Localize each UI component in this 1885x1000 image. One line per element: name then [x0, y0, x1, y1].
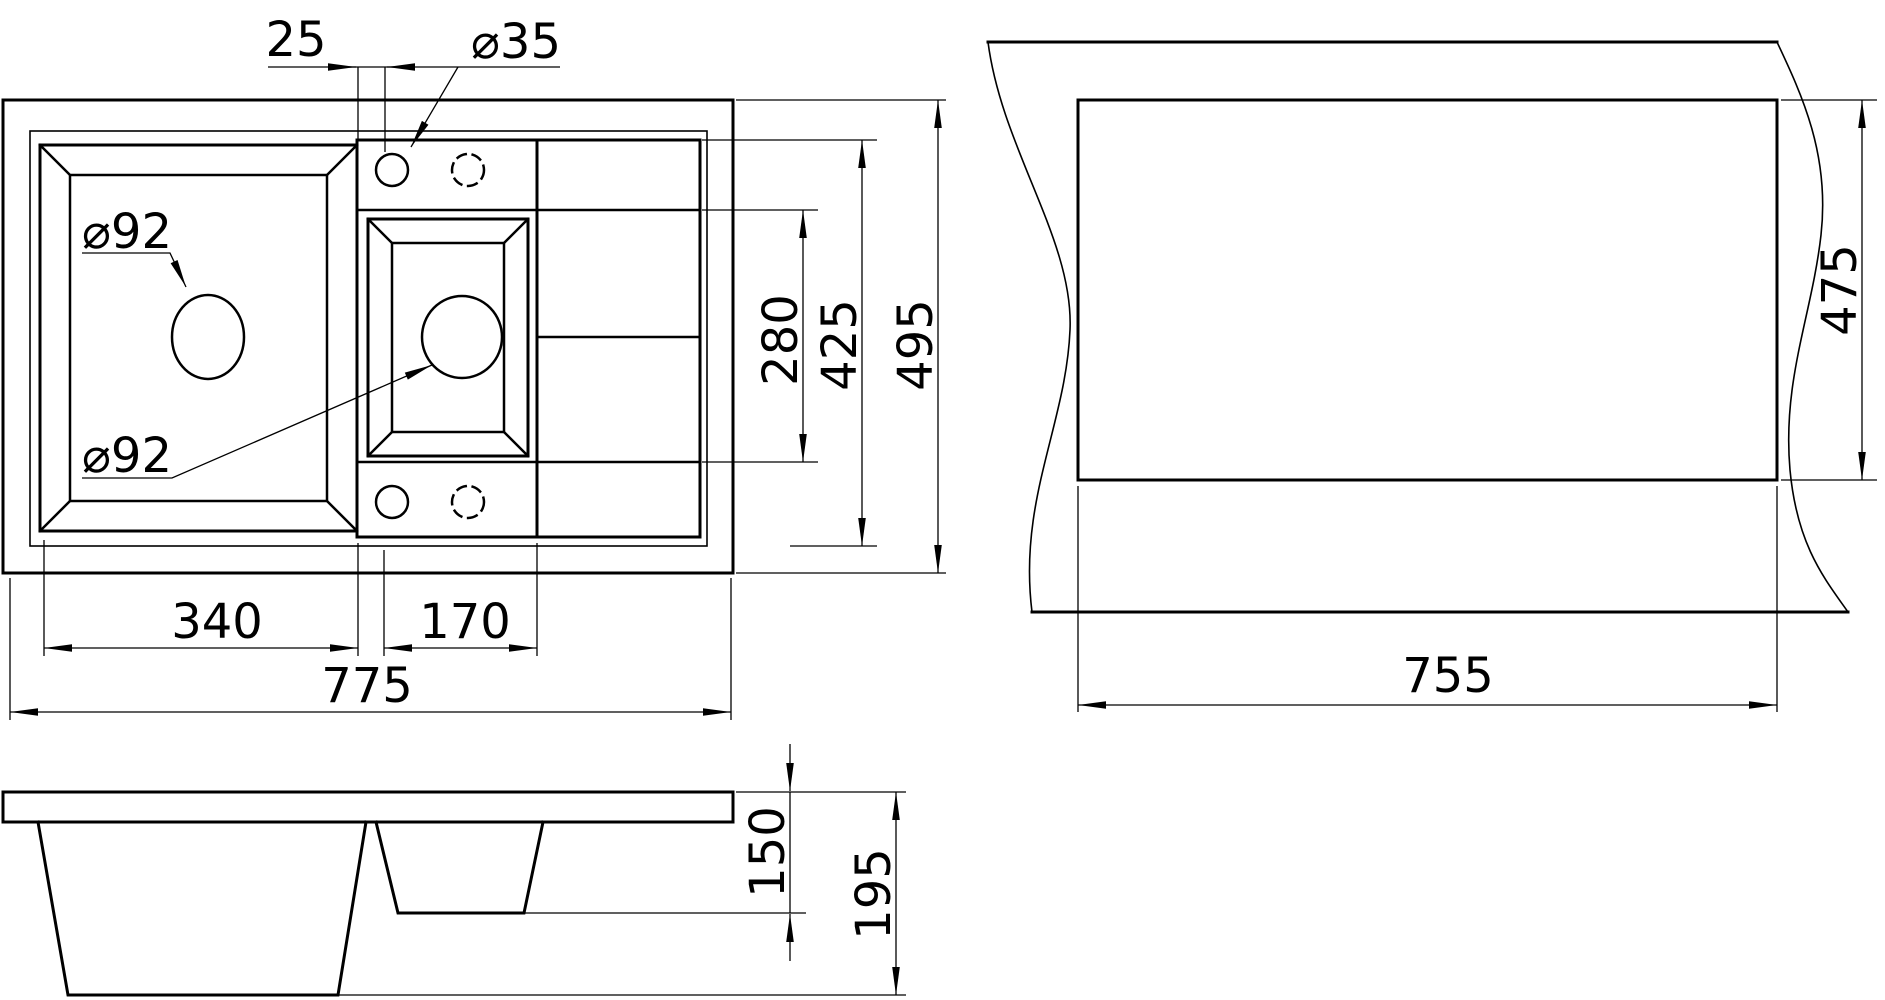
- dim-label-d92-main: ⌀92: [82, 204, 172, 260]
- dim-label-775: 775: [321, 658, 413, 714]
- dim-label-d35: ⌀35: [471, 14, 561, 70]
- leader-line: [411, 67, 458, 147]
- break-line-left: [988, 42, 1070, 612]
- dim-main-bowl-width: 340: [44, 540, 358, 656]
- dim-faucet-hole: ⌀35: [411, 14, 561, 147]
- drainboard: [537, 140, 700, 537]
- drawing-canvas: 25 ⌀35 ⌀92 ⌀92 280 425: [0, 0, 1885, 1000]
- section-view: 150 195: [3, 744, 906, 995]
- plan-view: 25 ⌀35 ⌀92 ⌀92 280 425: [3, 12, 946, 720]
- secondary-drain-hole: [422, 296, 502, 378]
- dim-cutout-width: 755: [1078, 486, 1777, 712]
- dim-main-drain: ⌀92: [82, 204, 186, 287]
- dim-main-bowl-depth: 195: [846, 792, 902, 995]
- sink-flange-section: [3, 792, 733, 822]
- dim-label-d92-secondary: ⌀92: [82, 428, 172, 484]
- technical-drawing: 25 ⌀35 ⌀92 ⌀92 280 425: [0, 0, 1885, 1000]
- dim-secondary-bowl-width: 170: [384, 543, 537, 656]
- dim-label-495: 495: [888, 299, 944, 391]
- dim-drainboard-depth: 280: [702, 210, 818, 462]
- faucet-hole-top-optional: [452, 154, 484, 186]
- dim-secondary-bowl-depth: 150: [740, 744, 796, 961]
- drainboard-edge: [537, 140, 700, 537]
- faucet-hole-bottom-optional: [452, 486, 484, 518]
- dim-label-150: 150: [740, 806, 796, 898]
- secondary-bowl: [368, 219, 528, 456]
- cutout-view: 475 755: [988, 42, 1877, 712]
- dim-label-425: 425: [812, 299, 868, 391]
- dim-label-170: 170: [419, 594, 511, 650]
- dim-overall-width: 775: [10, 578, 731, 720]
- dim-label-755: 755: [1402, 648, 1494, 704]
- cutout-outline: [1078, 100, 1777, 480]
- dim-label-195: 195: [846, 848, 902, 940]
- secondary-bowl-section: [376, 822, 543, 913]
- dim-label-280: 280: [753, 294, 809, 386]
- secondary-bowl-bevel: [392, 243, 504, 432]
- dim-label-475: 475: [1812, 244, 1868, 336]
- faucet-hole-top: [376, 154, 408, 186]
- faucet-hole-bottom: [376, 486, 408, 518]
- dim-cutout-depth: 475: [1781, 100, 1877, 480]
- middle-column: [357, 140, 700, 537]
- dim-label-340: 340: [171, 594, 263, 650]
- dim-secondary-drain: ⌀92: [82, 365, 432, 484]
- main-drain-hole: [172, 295, 244, 379]
- main-bowl-section: [38, 822, 366, 995]
- dim-label-25: 25: [265, 12, 326, 68]
- middle-column-edge: [357, 140, 537, 537]
